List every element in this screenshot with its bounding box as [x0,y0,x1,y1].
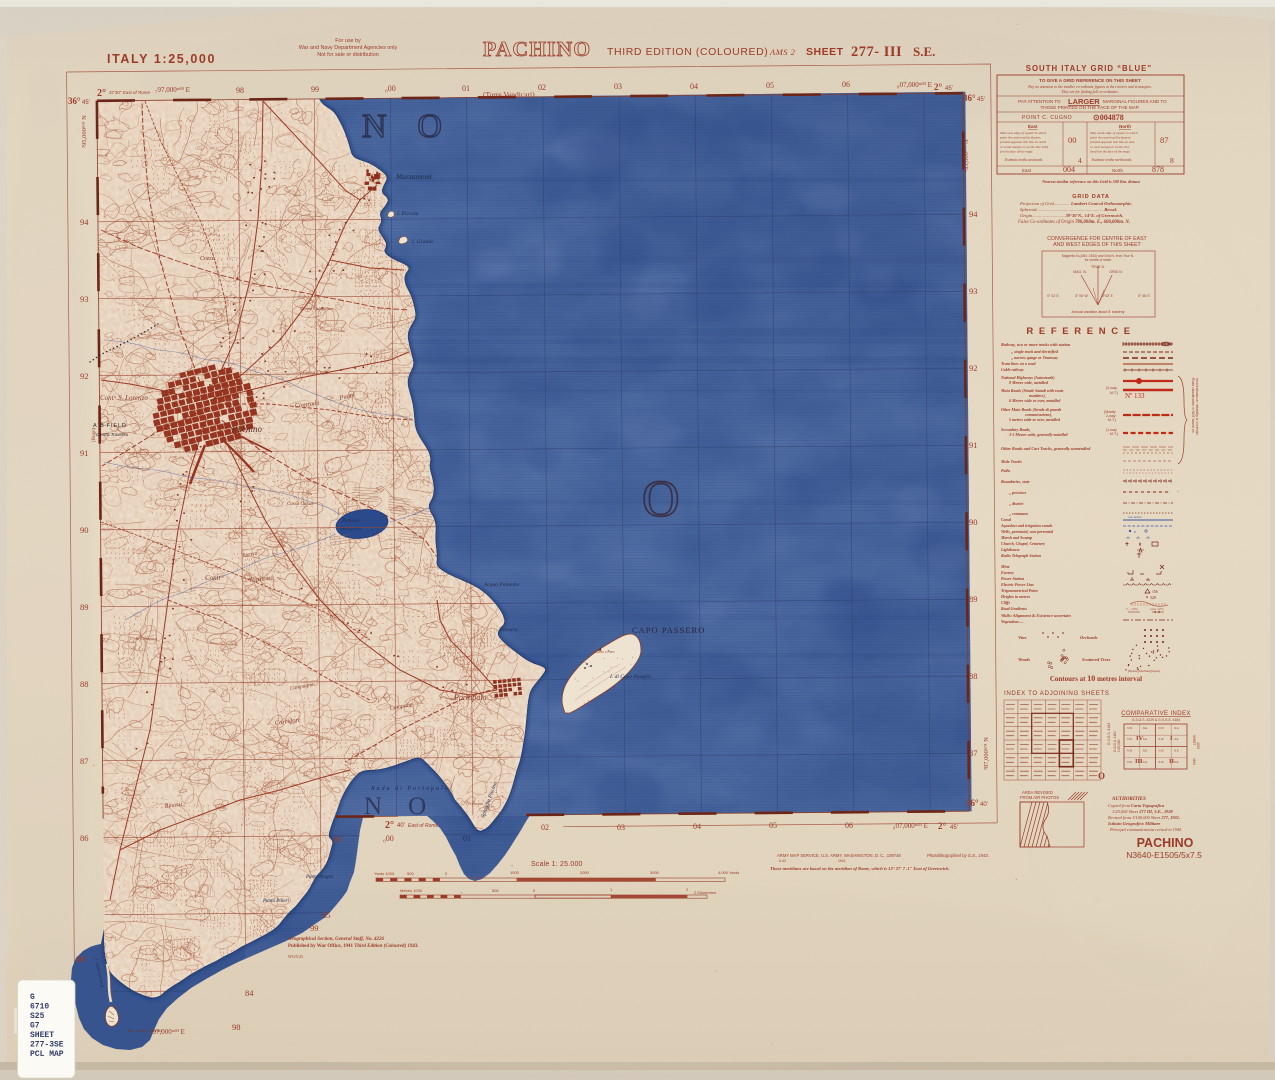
svg-text:Castello e Faro: Castello e Faro [592,650,615,654]
svg-text:Pay no attention to the smalle: Pay no attention to the smaller co-ordin… [1027,85,1152,89]
svg-text:point lies and read the figure: point lies and read the figures [999,136,1041,140]
svg-text:Principal communications revis: Principal communications revised in 1940… [1109,827,1182,832]
svg-text:For use by: For use by [335,38,361,44]
svg-text:04: 04 [693,822,701,831]
svg-text:5 metres wide or over, metalle: 5 metres wide or over, metalled [1009,417,1061,422]
svg-text:Portopalo: Portopalo [453,693,486,702]
svg-text:Radio Telegraph Station: Radio Telegraph Station [1001,553,1042,558]
svg-text:Photolithographed by G.S., 194: Photolithographed by G.S., 1943. [927,853,989,858]
svg-text:Geographical Section, General: Geographical Section, General Staff, No.… [288,937,385,942]
svg-text:CAPO PASSERO: CAPO PASSERO [632,625,705,635]
svg-text:1:25,000: 1:25,000 [1117,739,1121,752]
svg-text:PAY ATTENTION TO: PAY ATTENTION TO [1018,99,1061,104]
svg-text:M.T.): M.T.) [1110,432,1118,436]
svg-text:40': 40' [397,823,405,829]
svg-text:Tram lines on a road: Tram lines on a road [1001,361,1037,366]
svg-text:06: 06 [842,80,850,89]
svg-text:II: II [1169,758,1175,765]
svg-text:Canal: Canal [1001,517,1012,522]
svg-text:S.E.: S.E. [913,44,935,59]
svg-text:88: 88 [969,671,978,681]
svg-text:Electric Power Line: Electric Power Line [1000,582,1034,587]
svg-text:500: 500 [407,871,414,876]
svg-text:SHEET: SHEET [30,1031,54,1040]
svg-text:itself (on the face of the map: itself (on the face of the map) [1090,149,1131,153]
svg-text:Road classification is NOT bas: Road classification is NOT based on [1191,378,1195,433]
svg-text:Paths: Paths [1001,468,1011,473]
svg-text:₀00: ₀00 [383,834,394,843]
svg-text:2°: 2° [385,820,394,831]
svg-text:„ district: „ district [1009,501,1024,506]
svg-text:277- III: 277- III [851,44,902,60]
svg-text:6 Metres wide or over, metalle: 6 Metres wide or over, metalled [1009,398,1061,403]
svg-text:N.W.: N.W. [1159,726,1165,730]
svg-text:(on the face of the map): (on the face of the map) [1000,149,1033,153]
svg-text:War and Navy Department Agenci: War and Navy Department Agencies only [299,45,398,51]
svg-text:Punta Pilieri: Punta Pilieri [262,899,290,904]
svg-text:TO GIVE A GRID REFERENCE: TO GIVE A GRID REFERENCE ON THIS SHEET [1039,78,1141,83]
svg-text:PCL MAP: PCL MAP [30,1050,64,1059]
svg-text:(Bugo): (Bugo) [92,428,97,443]
svg-text:2°: 2° [938,821,947,831]
svg-text:S.E.: S.E. [1174,760,1179,764]
svg-text:92: 92 [80,371,89,381]
svg-text:85: 85 [322,910,331,920]
svg-text:False Co-ordinates of Origin 7: False Co-ordinates of Origin 700,000m. E… [1017,220,1130,225]
svg-text:4: 4 [1078,156,1082,165]
svg-text:THIRD EDITION (COLOURED): THIRD EDITION (COLOURED) [607,46,768,58]
svg-text:GRID N.: GRID N. [1109,270,1122,274]
svg-text:05: 05 [766,81,774,90]
svg-text:₀07,000ᵐᴹ E: ₀07,000ᵐᴹ E [897,81,932,89]
svg-text:90: 90 [80,525,89,535]
svg-text:²87,000ᵐᴹ N: ²87,000ᵐᴹ N [983,737,990,770]
svg-text:G: G [30,993,35,1002]
svg-text:Mule Tracks: Mule Tracks [1000,459,1022,464]
svg-text:36°: 36° [963,93,976,103]
svg-text:45': 45' [977,97,985,103]
svg-text:G.S.G.S. 4229 & G.S.G.S. 416: G.S.G.S. 4229 & G.S.G.S. 4164 [1132,718,1180,722]
svg-text:99: 99 [310,923,319,933]
svg-text:(Dense)(Medium)(Open): (Dense)(Medium)(Open) [1128,669,1160,673]
svg-text:G.S.G.S. 4164: G.S.G.S. 4164 [1113,731,1117,752]
svg-text:printed opposite this line on: printed opposite this line on east [1089,140,1135,144]
svg-text:„ narrow gauge or Tramway: „ narrow gauge or Tramway [1011,355,1058,360]
svg-text:N.W.: N.W. [1159,749,1165,753]
svg-text:Orchards: Orchards [1080,635,1098,640]
svg-text:Estimate tenths northwards: Estimate tenths northwards [1091,158,1132,162]
svg-text:98: 98 [236,86,244,95]
svg-text:S.E.: S.E. [1143,760,1148,764]
svg-text:→: → [1010,766,1015,772]
svg-text:Pantano: Pantano [341,519,359,524]
svg-text:156: 156 [1152,590,1158,594]
svg-text:or south margin or on the line: or south margin or on the line itself [1000,145,1049,149]
svg-text:Not for sale or distribution: Not for sale or distribution [317,52,378,58]
svg-text:S.E.: S.E. [1143,737,1148,741]
svg-text:PACHINO: PACHINO [1137,836,1194,850]
svg-text:0° 41' E: 0° 41' E [1047,294,1060,298]
svg-text:G.S.G.S. 4164: G.S.G.S. 4164 [1107,723,1111,745]
svg-text:Centro Traverso: Centro Traverso [96,432,129,437]
svg-text:They are for finding full co-o: They are for finding full co-ordinates. [1061,90,1118,94]
svg-text:Woods: Woods [1018,657,1030,662]
svg-text:over 12%: over 12% [1150,607,1164,611]
svg-text:500: 500 [492,888,499,893]
svg-text:POINT C. CUGNO: POINT C. CUGNO [1022,115,1072,121]
svg-text:Annual variation about 8' east: Annual variation about 8' easterly [1071,310,1124,314]
svg-text:Contours at 10 metres interval: Contours at 10 metres interval [1050,674,1142,683]
svg-text:can. lavato: can. lavato [1128,515,1142,519]
svg-text:S25: S25 [30,1012,45,1021]
svg-text:East of Rome: East of Rome [408,823,439,829]
svg-text:N.W.: N.W. [1127,726,1133,730]
svg-text:²95,000ᵐᴹ N: ²95,000ᵐᴹ N [81,115,88,148]
svg-text:36°: 36° [966,798,979,808]
svg-text:Projection of Grid............: Projection of Grid.............. Lambert… [1019,201,1132,206]
svg-text:Scale 1: 25.000: Scale 1: 25.000 [531,861,583,868]
svg-text:THOSE PRINTED ON THE FACE: THOSE PRINTED ON THE FACE OF THE MAP. [1040,105,1139,110]
svg-text:O: O [1098,771,1105,781]
svg-text:Nº 133: Nº 133 [1125,392,1145,400]
svg-text:AND WEST EDGES OF THIS SH: AND WEST EDGES OF THIS SHEET [1053,242,1141,248]
svg-text:Nearest similar reference on t: Nearest similar reference on this Grid i… [1041,179,1140,184]
svg-text:M.T.): M.T.) [1110,391,1118,395]
svg-text:G7: G7 [30,1022,40,1031]
svg-text:₇97,000ᵐᴹ E: ₇97,000ᵐᴹ E [155,86,190,94]
svg-text:point lies and read the figure: point lies and read the figures [1089,136,1131,140]
svg-text:N.E.: N.E. [1174,749,1179,753]
svg-text:Factory: Factory [1001,570,1014,575]
svg-text:8: 8 [1170,156,1174,165]
svg-text:GRID DATA: GRID DATA [1072,194,1109,200]
svg-text:North: North [1119,124,1131,129]
svg-text:N O: N O [362,108,456,145]
svg-text:(Torre Vendicari): (Torre Vendicari) [483,90,535,99]
svg-text:Church, Chapel, Cemetery: Church, Chapel, Cemetery [1001,541,1045,546]
svg-text:Vine: Vine [1018,635,1027,640]
svg-text:004: 004 [1063,165,1075,174]
svg-text:1000: 1000 [510,870,520,875]
svg-text:Heights in metres: Heights in metres [1000,594,1031,599]
svg-text:4229: 4229 [1196,742,1200,749]
svg-text:94: 94 [969,209,978,219]
svg-text:277-3SE: 277-3SE [30,1041,64,1050]
svg-text:for centre of sheet: for centre of sheet [1085,258,1112,262]
svg-text:Grotta Calafarina: Grotta Calafarina [300,306,333,311]
svg-text:Mine: Mine [1000,564,1010,569]
svg-text:Wells, perennial, non-perennia: Wells, perennial, non-perennial [1001,529,1054,534]
svg-text:Metres 1000: Metres 1000 [400,888,423,893]
svg-text:37′30″ East of Rome: 37′30″ East of Rome [109,90,150,95]
svg-text:Cosso Cugni: Cosso Cugni [303,371,329,376]
svg-text:0° 46' E: 0° 46' E [1138,294,1151,298]
svg-text:05: 05 [769,821,777,830]
svg-text:(2-way: (2-way [1106,386,1117,390]
svg-text:Other Roads and Cart Tracks, g: Other Roads and Cart Tracks, generally u… [1001,446,1091,451]
svg-text:or west margin or on the line: or west margin or on the line [1090,145,1130,149]
svg-text:I. Piccola: I. Piccola [396,211,419,217]
svg-text:²95,000ᵐᴹ N: ²95,000ᵐᴹ N [963,139,970,172]
svg-text:S.W.: S.W. [1159,760,1165,764]
svg-text:04: 04 [690,82,698,91]
svg-text:4164: 4164 [1192,758,1196,765]
svg-text:₀07,000ᵐᴹ E: ₀07,000ᵐᴹ E [893,822,928,830]
svg-text:01: 01 [462,84,470,93]
svg-text:Take west edge of square in wh: Take west edge of square in which [1000,131,1047,135]
svg-text:N.W.: N.W. [1127,749,1133,753]
svg-text:ARMY MAP SERVICE, U.S. ARMY, W: ARMY MAP SERVICE, U.S. ARMY, WASHINGTON,… [777,853,901,858]
svg-text:I. di Capo Passero: I. di Capo Passero [609,674,651,680]
svg-text:1941: 1941 [838,859,846,863]
svg-text:Lighthouse: Lighthouse [1000,547,1020,552]
svg-text:89: 89 [80,602,89,612]
svg-text:4,000 Yards: 4,000 Yards [718,870,739,875]
svg-text:89: 89 [969,594,978,604]
svg-text:328: 328 [1150,596,1156,600]
svg-text:2°: 2° [97,88,106,99]
svg-text:IV: IV [1136,735,1144,742]
svg-text:M.T.): M.T.) [1108,418,1116,422]
svg-text:S.W.: S.W. [1159,737,1165,741]
svg-text:Cable railway: Cable railway [1001,367,1024,372]
svg-text:reconnaissance; reliability is: reconnaissance; reliability is uncertain [1195,378,1199,435]
svg-text:Take south edge of square in w: Take south edge of square in which [1090,131,1138,135]
svg-text:P: P [1134,530,1136,534]
svg-text:S.E.: S.E. [1174,737,1179,741]
svg-text:Sec. delle Correnti: Sec. delle Correnti [128,1028,162,1033]
svg-text:Railway, two or more tracks wi: Railway, two or more tracks with station [1001,342,1071,347]
svg-text:AˈB FIELD: AˈB FIELD [93,423,126,429]
svg-text:Cᵃ la Contessa: Cᵃ la Contessa [130,636,158,641]
svg-text:40': 40' [980,802,988,808]
svg-text:92: 92 [969,363,978,373]
svg-text:06: 06 [845,821,853,830]
svg-text:N.E.: N.E. [1143,749,1148,753]
svg-text:₀00: ₀00 [385,84,396,93]
svg-text:MARGINAL FIGURES AND TO: MARGINAL FIGURES AND TO [1103,99,1167,104]
svg-text:88: 88 [80,679,89,689]
svg-text:Published by War Office, 1941: Published by War Office, 1941 Third Edit… [288,944,419,949]
svg-text:WO/5/43: WO/5/43 [288,954,303,959]
svg-text:84: 84 [245,988,254,998]
svg-text:Cᵃ Bruno: Cᵃ Bruno [466,801,484,806]
svg-text:I. Grande: I. Grande [411,239,434,245]
svg-text:⊙004878: ⊙004878 [1093,113,1124,122]
svg-text:00: 00 [1068,135,1077,145]
svg-text:2 Kilometres: 2 Kilometres [694,890,716,895]
svg-text:Marsh and Swamp: Marsh and Swamp [1000,535,1032,540]
svg-text:36°: 36° [76,955,87,964]
svg-text:0°43' E: 0°43' E [1102,294,1114,298]
svg-text:91: 91 [969,440,978,450]
svg-text:8 Metres wide, metalled: 8 Metres wide, metalled [1009,380,1049,385]
svg-text:45': 45' [945,86,953,92]
svg-text:„ single track and electr: „ single track and electrified [1011,349,1059,354]
svg-text:Spheroid......................: Spheroid................................… [1020,207,1117,212]
svg-text:Vegetation:—: Vegetation:— [1001,619,1024,624]
svg-text:86: 86 [80,833,89,843]
svg-text:7 – 12%: 7 – 12% [1126,607,1138,611]
svg-text:East: East [1028,124,1038,129]
svg-text:Tonnara: Tonnara [499,627,518,633]
svg-text:Cassa Cuesa: Cassa Cuesa [287,502,313,507]
svg-text:45': 45' [950,825,958,831]
svg-text:printed opposite this line on: printed opposite this line on north [999,140,1047,144]
svg-text:93: 93 [80,294,89,304]
svg-text:N3640-E1505/5x7.5: N3640-E1505/5x7.5 [1126,850,1202,860]
svg-text:Contᵃ S. Lorenzo: Contᵃ S. Lorenzo [100,394,148,402]
svg-text:East: East [1022,168,1032,173]
svg-text:North: North [1112,168,1124,173]
svg-text:AUTHORITIES: AUTHORITIES [1111,797,1146,802]
svg-text:Origin........................: Origin.............................39°30… [1020,213,1123,218]
svg-text:PACHINO: PACHINO [483,37,591,61]
svg-text:3° 06' W: 3° 06' W [1075,294,1089,298]
svg-text:878: 878 [1152,165,1164,174]
svg-text:Istituto Geografico Militare: Istituto Geografico Militare [1107,821,1160,826]
svg-text:Pachino: Pachino [231,424,262,434]
svg-text:SHEET: SHEET [1192,735,1196,746]
svg-text:N O: N O [364,793,438,820]
svg-text:COMPARATIVE INDEX: COMPARATIVE INDEX [1121,711,1191,717]
svg-text:N.E.: N.E. [1174,726,1179,730]
svg-text:3-5 Metres wide, generally met: 3-5 Metres wide, generally metalled [1008,432,1069,437]
svg-text:Aqueduct and irrigation canals: Aqueduct and irrigation canals [1000,523,1053,528]
svg-text:ITALY 1:25,000: ITALY 1:25,000 [107,52,216,66]
svg-text:87: 87 [969,748,978,758]
svg-text:99: 99 [311,85,319,94]
svg-text:02: 02 [541,823,549,832]
svg-text:90: 90 [969,517,978,527]
svg-text:Trigonometrical Point: Trigonometrical Point [1001,588,1039,593]
svg-text:Yards 1000: Yards 1000 [374,871,395,876]
svg-text:Contrᵃ: Contrᵃ [205,574,224,582]
svg-text:2°: 2° [934,82,943,92]
svg-text:6-43: 6-43 [779,859,786,863]
svg-text:03: 03 [617,823,625,832]
svg-text:INDEX TO ADJOINING SHEETS: INDEX TO ADJOINING SHEETS [1004,690,1110,697]
svg-text:87: 87 [1160,135,1169,145]
svg-text:Road Gradients: Road Gradients [1001,606,1027,611]
svg-text:91: 91 [80,448,89,458]
svg-text:O: O [642,471,680,528]
svg-text:Rada di Portopalo: Rada di Portopalo [370,786,450,792]
svg-text:Acqua Palomba: Acqua Palomba [483,582,520,588]
svg-text:Punta Anigra: Punta Anigra [305,875,333,880]
svg-text:S.W.: S.W. [1127,737,1133,741]
svg-text:„ commune: „ commune [1009,511,1028,516]
svg-text:36°: 36° [68,96,81,106]
svg-text:Cliffs: Cliffs [1001,600,1010,605]
svg-text:Marzamemi: Marzamemi [395,172,432,181]
svg-text:Those meridians are based on t: Those meridians are based on the meridia… [770,866,950,871]
svg-text:2000: 2000 [580,870,590,875]
svg-text:SHEET: SHEET [806,46,844,58]
svg-text:SOUTH ITALY GRID “BLUE”: SOUTH ITALY GRID “BLUE” [1026,64,1152,73]
svg-text:45': 45' [82,100,90,106]
svg-text:Walls: Alignment & Existence u: Walls: Alignment & Existence uncertain [1001,613,1071,618]
svg-text:87: 87 [80,756,89,766]
svg-text:01: 01 [463,834,471,843]
svg-text:Cozzo: Cozzo [200,256,215,262]
svg-text:93: 93 [969,286,978,296]
svg-text:R E F E R E N C E: R E F E R E N C E [1026,326,1131,337]
svg-text:S.W.: S.W. [1127,760,1133,764]
svg-text:3000: 3000 [650,870,660,875]
svg-text:02: 02 [538,83,546,92]
svg-text:6710: 6710 [30,1003,49,1012]
svg-text:N.E.: N.E. [1143,726,1148,730]
svg-text:Scattered Trees: Scattered Trees [1082,657,1111,662]
svg-text:Boundaries, state: Boundaries, state [1000,479,1030,484]
svg-text:86: 86 [333,834,342,844]
svg-text:„ province: „ province [1009,490,1026,495]
svg-text:Power Station: Power Station [1001,576,1025,581]
svg-text:III: III [1135,758,1143,765]
svg-text:Copied from Carta Topografica: Copied from Carta Topografica [1108,803,1165,808]
svg-text:Estimate tenths eastwards: Estimate tenths eastwards [1004,158,1043,162]
svg-text:03: 03 [614,82,622,91]
svg-text:AMS 2: AMS 2 [769,47,796,57]
svg-text:98: 98 [232,1022,241,1032]
svg-text:94: 94 [80,217,89,227]
svg-text:FROM AIR PHOTOS: FROM AIR PHOTOS [1020,795,1059,800]
svg-text:MAG. N.: MAG. N. [1073,270,1086,274]
